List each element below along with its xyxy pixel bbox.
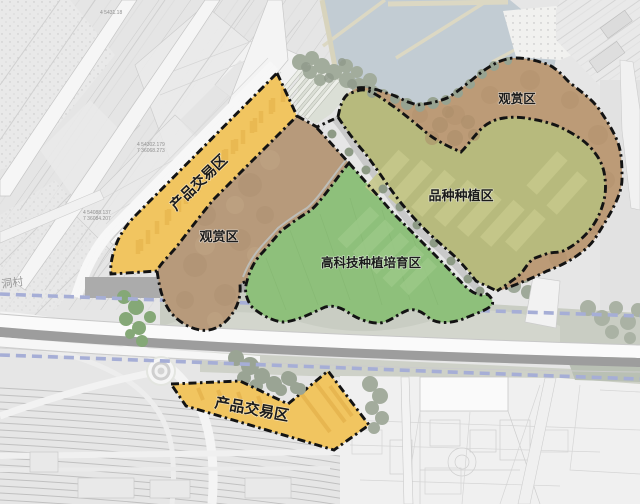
svg-text:7 36084.207: 7 36084.207	[83, 216, 111, 222]
svg-text:4 5431.18: 4 5431.18	[100, 10, 122, 16]
svg-text:品种种植区: 品种种植区	[428, 188, 493, 203]
svg-text:高科技种植培育区: 高科技种植培育区	[321, 255, 422, 270]
svg-text:观赏区: 观赏区	[199, 229, 238, 244]
svg-text:7 36068.273: 7 36068.273	[137, 148, 165, 154]
svg-text:观赏区: 观赏区	[498, 91, 536, 106]
